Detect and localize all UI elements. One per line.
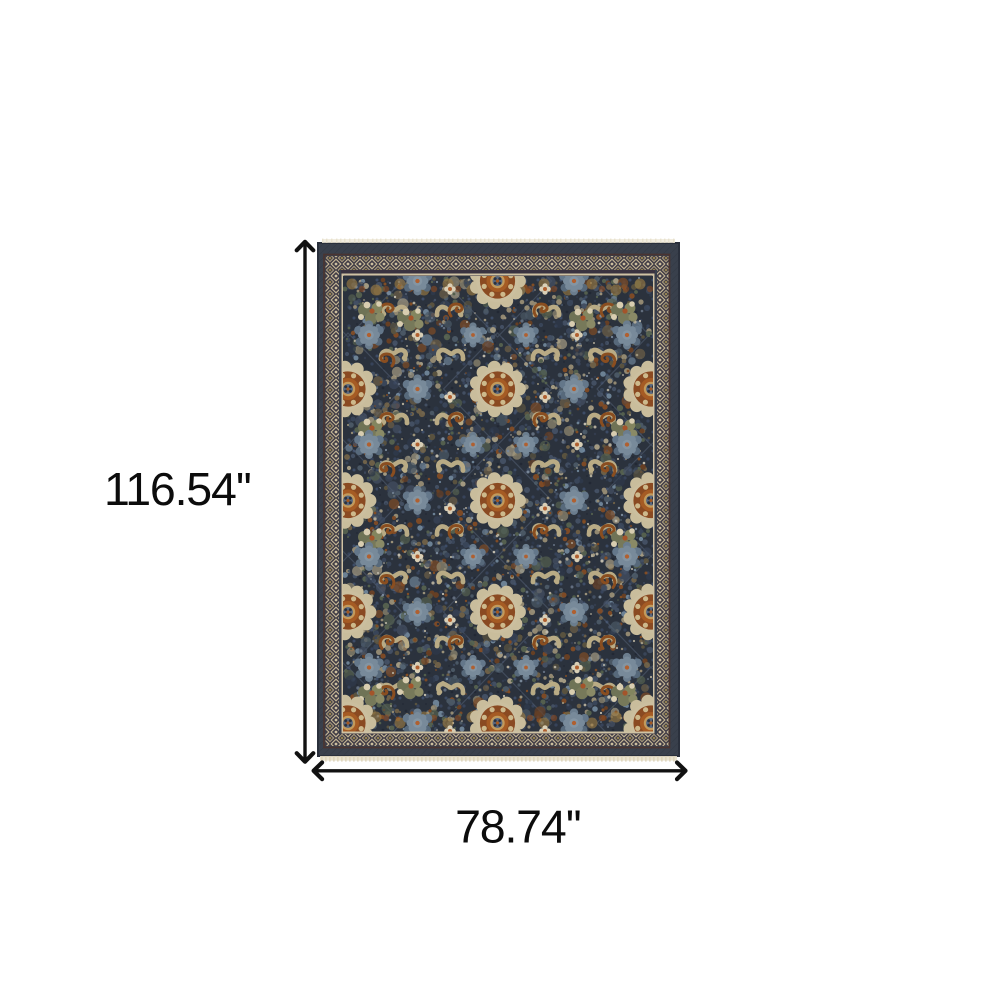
svg-text:78.74'': 78.74'' <box>455 801 581 853</box>
svg-text:116.54'': 116.54'' <box>104 463 251 515</box>
